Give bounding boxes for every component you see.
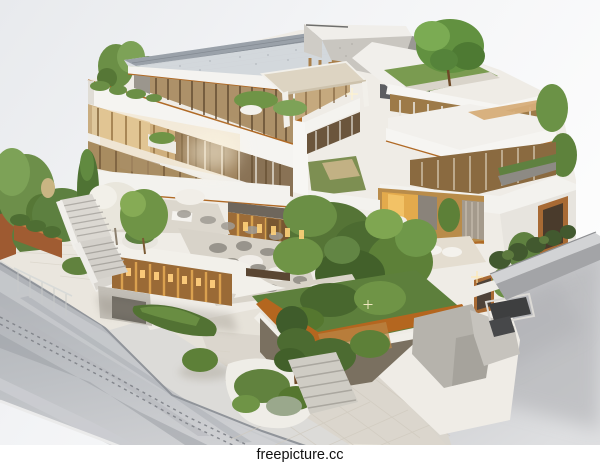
- svg-text:freepicture.cc: freepicture.cc: [256, 447, 343, 463]
